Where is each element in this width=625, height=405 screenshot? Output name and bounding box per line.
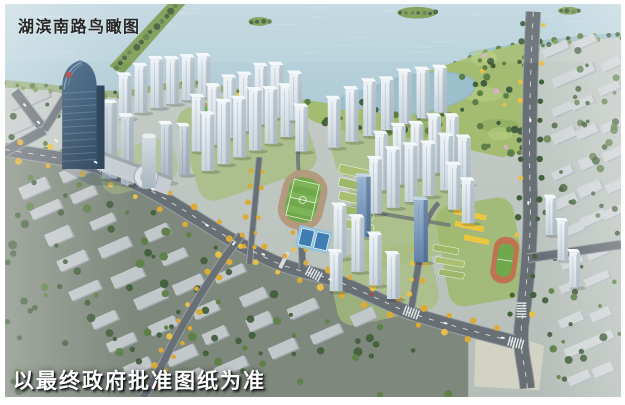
- rendering-canvas: [5, 4, 621, 397]
- disclaimer-caption: 以最终政府批准图纸为准: [13, 365, 266, 395]
- photo-frame: 湖滨南路鸟瞰图 以最终政府批准图纸为准: [0, 0, 625, 405]
- title-caption: 湖滨南路鸟瞰图: [18, 13, 141, 37]
- aerial-rendering: 湖滨南路鸟瞰图 以最终政府批准图纸为准: [5, 4, 621, 397]
